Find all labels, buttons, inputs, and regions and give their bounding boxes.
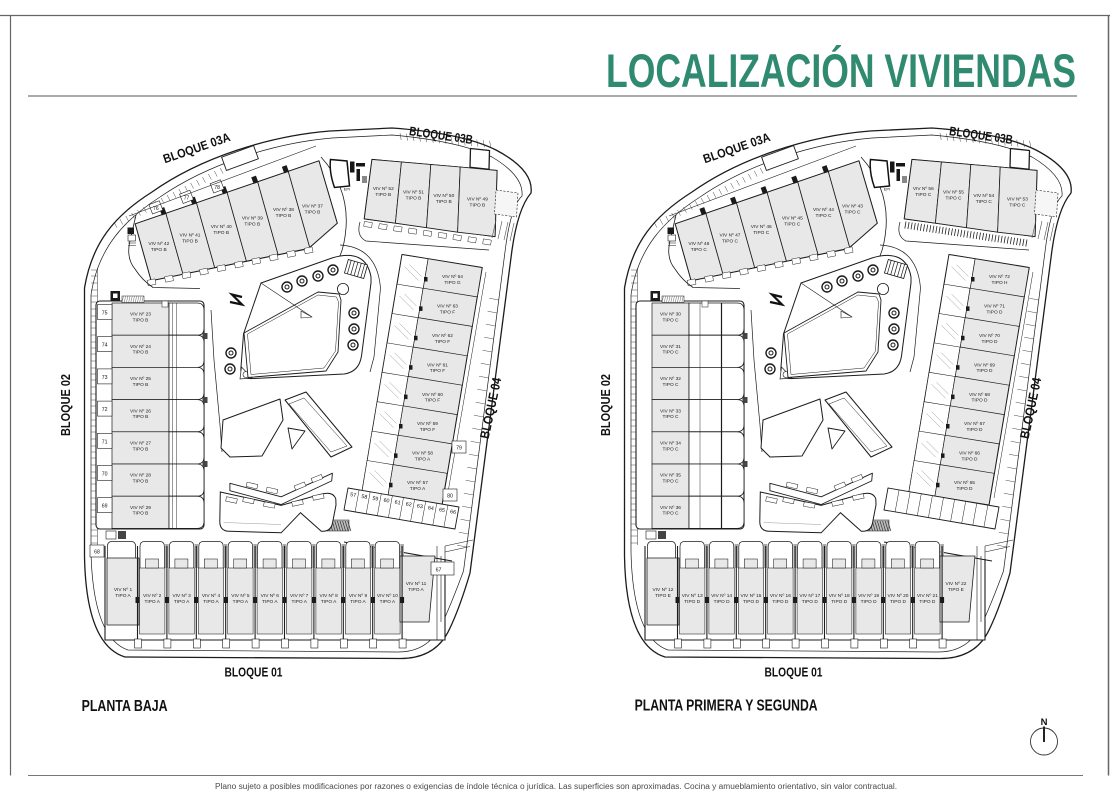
svg-text:VIV Nº 59TIPO F: VIV Nº 59TIPO F: [417, 421, 438, 433]
svg-text:VIV Nº 64TIPO G: VIV Nº 64TIPO G: [442, 274, 463, 286]
svg-text:VIV Nº 58TIPO A: VIV Nº 58TIPO A: [412, 451, 433, 463]
svg-text:59: 59: [372, 496, 379, 503]
svg-text:BLOQUE 01: BLOQUE 01: [765, 666, 823, 680]
svg-text:VIV Nº 3TIPO A: VIV Nº 3TIPO A: [172, 593, 191, 605]
svg-text:VIV Nº 23TIPO B: VIV Nº 23TIPO B: [130, 312, 151, 324]
svg-text:VIV Nº 37TIPO B: VIV Nº 37TIPO B: [302, 204, 323, 216]
svg-text:VIV Nº 15TIPO D: VIV Nº 15TIPO D: [741, 593, 762, 605]
svg-text:73: 73: [102, 375, 108, 381]
svg-text:64: 64: [427, 505, 434, 512]
svg-text:VIV Nº 24TIPO B: VIV Nº 24TIPO B: [130, 344, 151, 356]
svg-text:VIV Nº 34TIPO C: VIV Nº 34TIPO C: [660, 441, 681, 453]
svg-text:60: 60: [383, 498, 390, 505]
svg-text:74: 74: [102, 343, 108, 349]
svg-text:VIV Nº 55TIPO C: VIV Nº 55TIPO C: [943, 190, 964, 202]
svg-text:BLOQUE 04: BLOQUE 04: [477, 376, 505, 440]
svg-text:BLOQUE 03B: BLOQUE 03B: [408, 124, 473, 147]
svg-text:58: 58: [361, 494, 368, 501]
svg-text:VIV Nº 30TIPO C: VIV Nº 30TIPO C: [660, 312, 681, 324]
svg-text:VIV Nº 20TIPO D: VIV Nº 20TIPO D: [888, 593, 909, 605]
svg-text:BLOQUE 01: BLOQUE 01: [225, 666, 283, 680]
svg-text:VIV Nº 16TIPO D: VIV Nº 16TIPO D: [770, 593, 791, 605]
svg-text:65: 65: [439, 507, 446, 514]
svg-text:70: 70: [102, 472, 108, 478]
svg-text:VIV Nº 42TIPO B: VIV Nº 42TIPO B: [148, 241, 169, 253]
svg-text:BLOQUE 04: BLOQUE 04: [1017, 376, 1045, 440]
svg-text:VIV Nº 56TIPO C: VIV Nº 56TIPO C: [913, 186, 934, 198]
svg-text:PLANTA BAJA: PLANTA BAJA: [82, 698, 168, 715]
svg-text:VIV Nº 53TIPO C: VIV Nº 53TIPO C: [1007, 197, 1028, 209]
svg-text:VIV Nº 43TIPO C: VIV Nº 43TIPO C: [842, 204, 863, 216]
svg-text:VIV Nº 6TIPO A: VIV Nº 6TIPO A: [261, 593, 280, 605]
svg-text:VIV Nº 17TIPO D: VIV Nº 17TIPO D: [799, 593, 820, 605]
svg-text:VIV Nº 12TIPO E: VIV Nº 12TIPO E: [653, 587, 674, 599]
svg-text:VIV Nº 21TIPO D: VIV Nº 21TIPO D: [917, 593, 938, 605]
svg-text:VIV Nº 62TIPO F: VIV Nº 62TIPO F: [432, 333, 453, 345]
svg-text:VIV Nº 60TIPO F: VIV Nº 60TIPO F: [422, 392, 443, 404]
svg-text:VIV Nº 13TIPO D: VIV Nº 13TIPO D: [682, 593, 703, 605]
svg-text:66: 66: [450, 509, 457, 516]
svg-text:VIV Nº 39TIPO B: VIV Nº 39TIPO B: [242, 216, 263, 228]
svg-text:VIV Nº 5TIPO A: VIV Nº 5TIPO A: [231, 593, 250, 605]
svg-text:VIV Nº 61TIPO F: VIV Nº 61TIPO F: [427, 362, 448, 374]
svg-text:VIV Nº 22TIPO E: VIV Nº 22TIPO E: [946, 581, 967, 593]
svg-text:68: 68: [94, 550, 100, 556]
svg-text:VIV Nº 1TIPO A: VIV Nº 1TIPO A: [114, 587, 133, 599]
svg-text:VIV Nº 40TIPO B: VIV Nº 40TIPO B: [211, 224, 232, 236]
svg-text:78: 78: [214, 185, 220, 191]
svg-text:VIV Nº 66TIPO D: VIV Nº 66TIPO D: [959, 451, 980, 463]
svg-text:VIV Nº 72TIPO H: VIV Nº 72TIPO H: [989, 274, 1010, 286]
svg-text:VIV Nº 49TIPO B: VIV Nº 49TIPO B: [467, 197, 488, 209]
svg-text:VIV Nº 10TIPO A: VIV Nº 10TIPO A: [377, 593, 398, 605]
svg-text:57: 57: [350, 492, 357, 499]
svg-text:BLOQUE 02: BLOQUE 02: [598, 374, 613, 436]
svg-text:72: 72: [102, 407, 108, 413]
svg-text:VIV Nº 9TIPO A: VIV Nº 9TIPO A: [349, 593, 368, 605]
svg-text:VIV Nº 32TIPO C: VIV Nº 32TIPO C: [660, 376, 681, 388]
svg-text:VIV Nº 28TIPO B: VIV Nº 28TIPO B: [130, 473, 151, 485]
svg-text:VIV Nº 69TIPO D: VIV Nº 69TIPO D: [974, 362, 995, 374]
svg-text:VIV Nº 31TIPO C: VIV Nº 31TIPO C: [660, 344, 681, 356]
svg-text:VIV Nº 52TIPO B: VIV Nº 52TIPO B: [373, 186, 394, 198]
svg-text:67: 67: [436, 568, 442, 574]
svg-text:LOCALIZACIÓN VIVIENDAS: LOCALIZACIÓN VIVIENDAS: [606, 44, 1076, 97]
svg-text:62: 62: [405, 502, 412, 509]
svg-text:BLOQUE 03A: BLOQUE 03A: [701, 130, 772, 166]
svg-text:Plano sujeto a posibles modifi: Plano sujeto a posibles modificaciones p…: [215, 782, 897, 791]
svg-text:N: N: [1041, 717, 1048, 728]
svg-text:VIV Nº 47TIPO C: VIV Nº 47TIPO C: [720, 233, 741, 245]
svg-text:VIV Nº 14TIPO D: VIV Nº 14TIPO D: [711, 593, 732, 605]
svg-text:VIV Nº 4TIPO A: VIV Nº 4TIPO A: [202, 593, 221, 605]
svg-text:VIV Nº 70TIPO D: VIV Nº 70TIPO D: [979, 333, 1000, 345]
svg-text:69: 69: [102, 504, 108, 510]
svg-text:BLOQUE 03A: BLOQUE 03A: [161, 130, 232, 166]
svg-text:VIV Nº 65TIPO D: VIV Nº 65TIPO D: [954, 480, 975, 492]
svg-text:VIV Nº 35TIPO C: VIV Nº 35TIPO C: [660, 473, 681, 485]
svg-text:VIV Nº 11TIPO A: VIV Nº 11TIPO A: [406, 581, 427, 593]
svg-text:VIV Nº 51TIPO B: VIV Nº 51TIPO B: [403, 190, 424, 202]
svg-text:VIV Nº 18TIPO D: VIV Nº 18TIPO D: [829, 593, 850, 605]
svg-text:EPI: EPI: [344, 187, 350, 192]
svg-text:VIV Nº 19TIPO D: VIV Nº 19TIPO D: [858, 593, 879, 605]
svg-text:75: 75: [102, 311, 108, 317]
svg-text:VIV Nº 57TIPO A: VIV Nº 57TIPO A: [407, 480, 428, 492]
svg-text:BLOQUE 02: BLOQUE 02: [58, 374, 73, 436]
svg-text:VIV Nº 67TIPO D: VIV Nº 67TIPO D: [964, 421, 985, 433]
svg-text:VIV Nº 29TIPO B: VIV Nº 29TIPO B: [130, 505, 151, 517]
svg-text:EPI: EPI: [884, 187, 890, 192]
svg-text:VIV Nº 38TIPO B: VIV Nº 38TIPO B: [273, 207, 294, 219]
svg-text:VIV Nº 36TIPO C: VIV Nº 36TIPO C: [660, 505, 681, 517]
svg-text:VIV Nº 41TIPO B: VIV Nº 41TIPO B: [180, 233, 201, 245]
svg-text:VIV Nº 7TIPO A: VIV Nº 7TIPO A: [290, 593, 309, 605]
svg-text:VIV Nº 50TIPO B: VIV Nº 50TIPO B: [433, 193, 454, 205]
svg-text:VIV Nº 2TIPO A: VIV Nº 2TIPO A: [143, 593, 162, 605]
svg-text:77: 77: [184, 195, 190, 201]
svg-text:VIV Nº 48TIPO C: VIV Nº 48TIPO C: [688, 241, 709, 253]
svg-text:80: 80: [447, 494, 453, 500]
svg-text:61: 61: [394, 500, 401, 507]
svg-text:VIV Nº 33TIPO C: VIV Nº 33TIPO C: [660, 408, 681, 420]
svg-text:79: 79: [456, 446, 462, 452]
svg-text:VIV Nº 54TIPO C: VIV Nº 54TIPO C: [973, 193, 994, 205]
svg-text:VIV Nº 46TIPO C: VIV Nº 46TIPO C: [751, 224, 772, 236]
svg-text:PLANTA PRIMERA Y SEGUNDA: PLANTA PRIMERA Y SEGUNDA: [635, 698, 818, 715]
svg-text:VIV Nº 45TIPO C: VIV Nº 45TIPO C: [782, 216, 803, 228]
svg-text:VIV Nº 68TIPO D: VIV Nº 68TIPO D: [969, 392, 990, 404]
svg-text:VIV Nº 26TIPO B: VIV Nº 26TIPO B: [130, 408, 151, 420]
svg-text:VIV Nº 8TIPO A: VIV Nº 8TIPO A: [319, 593, 338, 605]
svg-text:71: 71: [102, 439, 108, 445]
svg-text:63: 63: [416, 504, 423, 511]
svg-text:VIV Nº 44TIPO C: VIV Nº 44TIPO C: [813, 207, 834, 219]
svg-text:VIV Nº 63TIPO F: VIV Nº 63TIPO F: [437, 304, 458, 316]
svg-text:BLOQUE 03B: BLOQUE 03B: [948, 124, 1013, 147]
svg-text:VIV Nº 71TIPO D: VIV Nº 71TIPO D: [984, 304, 1005, 316]
svg-text:VIV Nº 25TIPO B: VIV Nº 25TIPO B: [130, 376, 151, 388]
svg-text:VIV Nº 27TIPO B: VIV Nº 27TIPO B: [130, 441, 151, 453]
